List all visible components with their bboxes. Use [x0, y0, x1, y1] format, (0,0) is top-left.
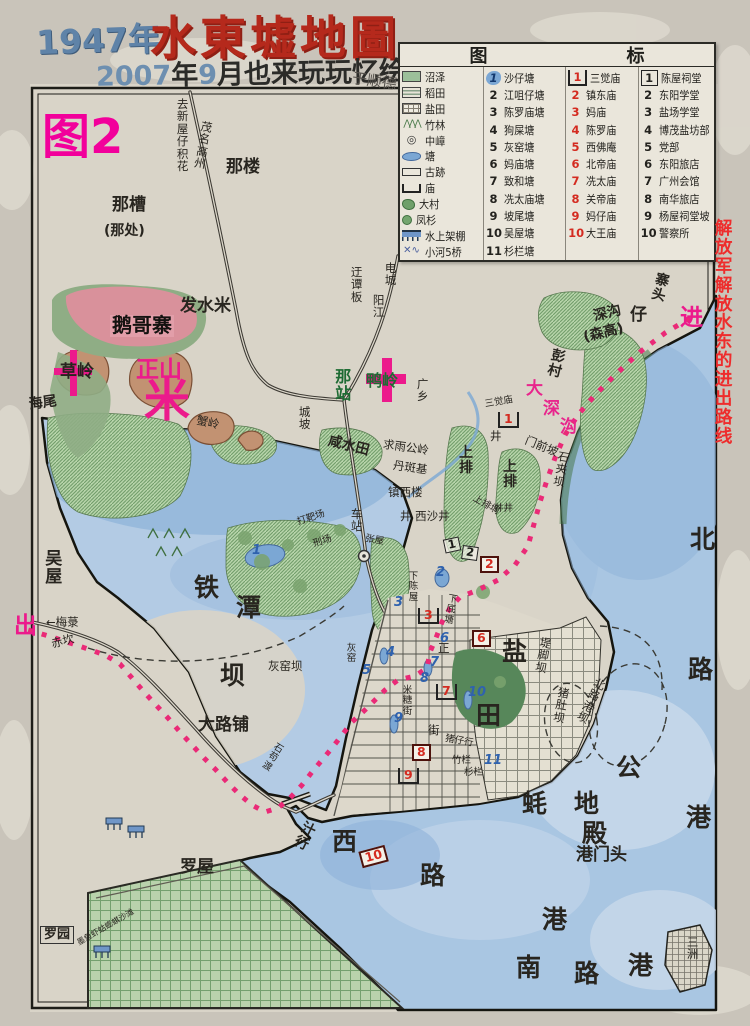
pond-number-marker: 2	[436, 566, 445, 579]
legend-item: 竹林	[402, 117, 482, 133]
map-label: 去新屋仔积花	[176, 98, 189, 172]
legend-item-number: 5	[641, 140, 656, 154]
map-label: 田	[476, 702, 501, 729]
map-label: 沟	[560, 418, 577, 436]
legend-item: 塘	[402, 148, 482, 164]
legend-item: 1三觉庙	[568, 69, 637, 86]
legend-item: 古跡	[402, 164, 482, 180]
legend-item-number: 1	[568, 70, 587, 86]
map-label: 鸭岭	[366, 372, 398, 389]
map-label: 鹅哥寨	[110, 315, 174, 337]
map-label: 港	[542, 906, 567, 933]
pond-number-marker: 11	[484, 754, 502, 767]
pond-number-marker: 5	[362, 664, 371, 677]
legend-item: 3陈罗庙塘	[486, 104, 564, 121]
legend-item: 庙	[402, 180, 482, 196]
legend-item-number: 7	[568, 174, 583, 188]
map-label: 路	[574, 960, 599, 987]
legend-item-label: 大王庙	[586, 225, 616, 241]
legend-item-number: 5	[486, 140, 501, 154]
village-icon	[402, 199, 415, 210]
map-label: 路	[688, 656, 713, 683]
salt-icon	[402, 103, 421, 114]
map-label: 罗屋	[180, 858, 214, 876]
legend-item-label: 塘	[425, 148, 435, 164]
map-label: 殿	[582, 820, 607, 847]
legend-item-number: 6	[641, 157, 656, 171]
temple-number-marker: 8	[412, 744, 431, 761]
pond-number-marker: 9	[394, 712, 403, 725]
legend-item-number: 3	[641, 105, 656, 119]
map-label: 电城	[384, 262, 397, 287]
map-label: 铁	[194, 574, 219, 601]
legend-item-label: 狗屎塘	[504, 122, 534, 138]
map-label: 迂谭板	[350, 266, 363, 303]
legend-item: 7冼太庙	[568, 173, 637, 190]
legend-item-label: 党部	[659, 139, 679, 155]
map-label: 公	[616, 754, 641, 781]
map-label: 草岭	[60, 363, 94, 381]
map-label: 那槽	[112, 196, 146, 214]
legend-item-label: 盐场学堂	[659, 104, 699, 120]
legend-item-number: 10	[568, 226, 583, 240]
map-label: 街	[428, 724, 440, 736]
legend-item-number: 1	[641, 70, 658, 86]
legend-item-label: 大村	[419, 196, 439, 212]
legend-item-number: 5	[568, 140, 583, 154]
legend-item: 盐田	[402, 101, 482, 117]
legend-item-number: 9	[568, 209, 583, 223]
legend-item: 10警察所	[641, 225, 713, 242]
legend-item: 小河5桥	[402, 244, 482, 260]
legend-item-label: 冼太庙	[586, 173, 616, 189]
legend-item-number: 1	[486, 71, 501, 85]
legend-item-label: 小河5桥	[425, 244, 462, 260]
legend-item-number: 3	[568, 105, 583, 119]
ruin-icon	[402, 168, 421, 176]
legend-item-label: 水上架棚	[425, 228, 465, 244]
map-label: 坝	[220, 662, 245, 689]
legend-item-label: 广州会馆	[659, 173, 699, 189]
legend-item: 9坡尾塘	[486, 207, 564, 224]
legend-item-label: 警察所	[659, 225, 689, 241]
legend-item-label: 江咀仔塘	[504, 87, 544, 103]
legend-item-label: 古跡	[425, 164, 445, 180]
legend-item-number: 10	[486, 226, 501, 240]
map-label: 那站	[334, 368, 352, 403]
legend-item: 7致和塘	[486, 173, 564, 190]
legend-item: 6北帝庙	[568, 155, 637, 172]
legend-item: 4陈罗庙	[568, 121, 637, 138]
legend-item: 3盐场学堂	[641, 104, 713, 121]
temple-number-marker: 1	[498, 412, 519, 428]
legend-item-label: 东阳学堂	[659, 87, 699, 103]
legend-item-number: 2	[641, 88, 656, 102]
legend-item-label: 沼泽	[425, 69, 445, 85]
map-label: 蚝	[522, 790, 547, 817]
legend-item-number: 7	[486, 174, 501, 188]
temple-number-marker: 2	[480, 556, 499, 573]
map-label: 上排	[458, 446, 474, 476]
legend-item-label: 三觉庙	[590, 70, 620, 86]
map-label: 三洲	[686, 936, 699, 961]
legend-item: 11杉栏塘	[486, 242, 564, 259]
map-label: 西	[332, 828, 357, 855]
map-label: 大	[526, 380, 543, 398]
map-label: 杉栏	[464, 768, 483, 778]
map-label: 井井	[494, 504, 513, 514]
legend-item-label: 南华旅店	[659, 191, 699, 207]
legend-item: 10吴屋塘	[486, 225, 564, 242]
legend-item: 大村	[402, 196, 482, 212]
legend-item: 4狗屎塘	[486, 121, 564, 138]
map-label: 北	[690, 526, 715, 553]
map-label: 大路铺	[198, 716, 249, 734]
map-label: 上排	[502, 460, 518, 490]
hand-drawn-map-page: 1947年 水東墟地圖 2007年9月也来玩玩忆绘 于顺德 图标 沼泽稻田盐田竹…	[0, 0, 750, 1026]
temple-number-marker: 7	[436, 684, 457, 700]
legend-item-number: 7	[641, 174, 656, 188]
legend-item-number: 10	[641, 226, 656, 240]
map-label: 港	[628, 952, 653, 979]
temple-number-marker: 9	[398, 768, 419, 784]
map-label: 港	[686, 804, 711, 831]
legend: 图标 沼泽稻田盐田竹林中嶂塘古跡庙大村凤杉水上架棚小河5桥 1沙仔塘2江咀仔塘3…	[398, 42, 716, 262]
legend-item-label: 庙	[425, 180, 435, 196]
legend-item-label: 东阳旅店	[659, 156, 699, 172]
legend-item-number: 6	[486, 157, 501, 171]
map-label: 阳江	[372, 294, 385, 319]
legend-item-label: 稻田	[425, 85, 445, 101]
legend-item-label: 灰窑塘	[504, 139, 534, 155]
temple-number-marker: 3	[418, 608, 439, 624]
temple-number-marker: 6	[472, 630, 491, 647]
legend-item-label: 博茂盐坊部	[659, 122, 710, 138]
map-label: 深	[543, 400, 560, 418]
bamboo-icon	[402, 119, 421, 130]
legend-item-label: 妈庙	[586, 104, 606, 120]
legend-item: 9妈仔庙	[568, 207, 637, 224]
map-label: ←梅菉	[46, 616, 79, 628]
map-label: 仔	[630, 306, 647, 324]
legend-item: 2江咀仔塘	[486, 86, 564, 103]
fir-icon	[402, 215, 412, 225]
map-label: 竹栏	[452, 756, 471, 766]
legend-item-label: 致和塘	[504, 173, 534, 189]
legend-item-label: 陈屋祠堂	[661, 70, 701, 86]
legend-item-number: 9	[641, 209, 656, 223]
legend-item: 沼泽	[402, 69, 482, 85]
map-label: 广乡	[416, 378, 429, 403]
map-label: 出	[14, 614, 37, 639]
map-label: 井 西沙井	[400, 510, 450, 522]
pond-number-marker: 6	[440, 632, 449, 645]
legend-item-number: 6	[568, 157, 583, 171]
pond-number-marker: 7	[430, 656, 439, 669]
legend-item-number: 2	[486, 88, 501, 102]
river-icon	[402, 246, 421, 257]
legend-header: 图标	[400, 44, 714, 67]
legend-item-number: 2	[568, 88, 583, 102]
legend-item: 4博茂盐坊部	[641, 121, 713, 138]
legend-item-number: 8	[486, 192, 501, 206]
map-label: 罗园	[40, 926, 74, 944]
legend-item-label: 陈罗庙塘	[504, 104, 544, 120]
stilt-icon	[402, 230, 421, 241]
legend-item: 6东阳旅店	[641, 155, 713, 172]
legend-item: 9杨屋祠堂坡	[641, 207, 713, 224]
map-label: 城坡	[298, 406, 311, 431]
map-label: 地	[574, 790, 599, 817]
paddy-icon	[402, 87, 421, 98]
legend-buildings-column: 1陈屋祠堂2东阳学堂3盐场学堂4博茂盐坊部5党部6东阳旅店7广州会馆8南华旅店9…	[638, 67, 714, 260]
legend-item-number: 8	[641, 192, 656, 206]
legend-item-number: 8	[568, 192, 583, 206]
map-label: 图2	[42, 112, 123, 164]
legend-item-number: 4	[568, 123, 583, 137]
legend-item-label: 北帝庙	[586, 156, 616, 172]
map-label: 发水米	[180, 297, 231, 315]
map-label: 灰窑	[346, 644, 357, 665]
pond-number-marker: 1	[252, 544, 261, 557]
pond-number-marker: 4	[386, 646, 395, 659]
legend-item: 2镇东庙	[568, 86, 637, 103]
map-label: 那楼	[226, 158, 260, 176]
map-label: 镇西楼	[388, 486, 423, 498]
map-label: 路	[420, 862, 445, 889]
legend-item-label: 中嶂	[425, 133, 445, 149]
legend-item: 稻田	[402, 85, 482, 101]
legend-item-label: 竹林	[425, 117, 445, 133]
map-label: 港门头	[576, 846, 627, 864]
map-label: 车站	[350, 508, 363, 533]
legend-item: 1陈屋祠堂	[641, 69, 713, 86]
building-number-marker: 2	[461, 545, 479, 561]
legend-item: 中嶂	[402, 133, 482, 149]
map-label: 吴屋	[44, 550, 64, 587]
legend-item: 10大王庙	[568, 225, 637, 242]
map-label: 解放军解放水东的进出路线	[714, 220, 734, 447]
map-label: 潭	[236, 594, 261, 621]
legend-item: 3妈庙	[568, 104, 637, 121]
legend-item-label: 关帝庙	[586, 191, 616, 207]
marsh-icon	[402, 71, 421, 82]
pond-number-marker: 3	[394, 596, 403, 609]
legend-item-label: 杉栏塘	[504, 243, 534, 259]
map-label: (那处)	[104, 224, 145, 239]
legend-item-label: 坡尾塘	[504, 208, 534, 224]
legend-item-number: 4	[641, 123, 656, 137]
legend-item: 5党部	[641, 138, 713, 155]
legend-item-number: 3	[486, 105, 501, 119]
temple-icon	[402, 184, 421, 193]
map-label: 米糖街	[402, 686, 413, 717]
legend-item-label: 妈庙塘	[504, 156, 534, 172]
legend-item-label: 冼太庙塘	[504, 191, 544, 207]
legend-item: 6妈庙塘	[486, 155, 564, 172]
legend-item: 2东阳学堂	[641, 86, 713, 103]
legend-item: 水上架棚	[402, 228, 482, 244]
legend-item-label: 盐田	[425, 101, 445, 117]
legend-item: 8关帝庙	[568, 190, 637, 207]
legend-item-number: 9	[486, 209, 501, 223]
legend-item: 8南华旅店	[641, 190, 713, 207]
legend-item: 8冼太庙塘	[486, 190, 564, 207]
pond-number-marker: 10	[468, 686, 486, 699]
legend-item-label: 妈仔庙	[586, 208, 616, 224]
legend-item-label: 镇东庙	[586, 87, 616, 103]
legend-temples-column: 1三觉庙2镇东庙3妈庙4陈罗庙5西佛庵6北帝庙7冼太庙8关帝庙9妈仔庙10大王庙	[565, 67, 638, 260]
map-label: 米	[144, 376, 190, 426]
legend-item-label: 西佛庵	[586, 139, 616, 155]
legend-item: 5灰窑塘	[486, 138, 564, 155]
legend-item-number: 11	[486, 244, 501, 258]
legend-item: 5西佛庵	[568, 138, 637, 155]
legend-item-label: 沙仔塘	[504, 70, 534, 86]
legend-item-label: 杨屋祠堂坡	[659, 208, 710, 224]
legend-item-number: 4	[486, 123, 501, 137]
hill-icon	[402, 135, 421, 146]
pond-icon	[402, 152, 421, 161]
map-label: 下陈屋	[408, 572, 419, 603]
legend-item-label: 凤杉	[416, 212, 436, 228]
legend-ponds-column: 1沙仔塘2江咀仔塘3陈罗庙塘4狗屎塘5灰窑塘6妈庙塘7致和塘8冼太庙塘9坡尾塘1…	[483, 67, 565, 260]
legend-item-label: 陈罗庙	[586, 122, 616, 138]
map-label: 灰窑坝	[268, 660, 303, 672]
legend-item: 1沙仔塘	[486, 69, 564, 86]
legend-item: 凤杉	[402, 212, 482, 228]
legend-symbols-column: 沼泽稻田盐田竹林中嶂塘古跡庙大村凤杉水上架棚小河5桥	[400, 67, 483, 260]
map-label: 井	[490, 430, 502, 442]
legend-item: 7广州会馆	[641, 173, 713, 190]
legend-item-label: 吴屋塘	[504, 225, 534, 241]
map-label: 盐	[502, 638, 527, 665]
pond-number-marker: 8	[420, 672, 429, 685]
map-label: 南	[516, 954, 541, 981]
map-label: 进	[680, 306, 703, 331]
